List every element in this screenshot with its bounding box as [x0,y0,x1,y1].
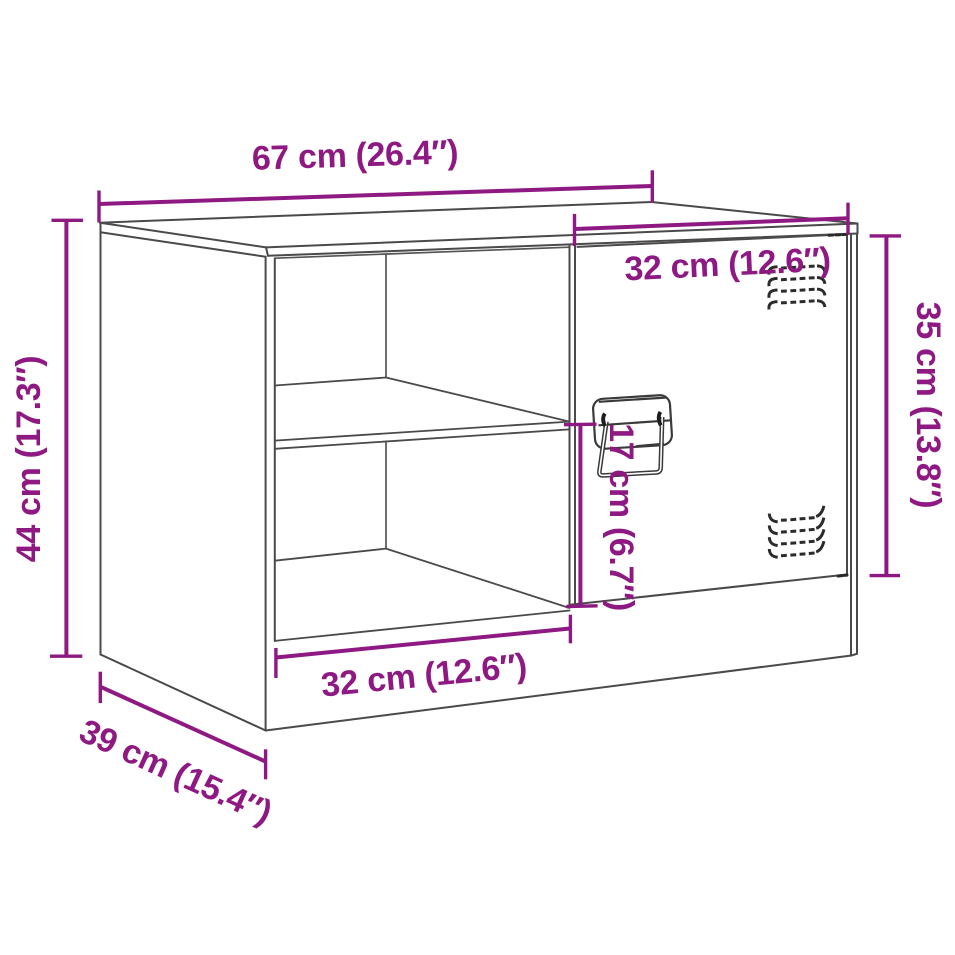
svg-text:44 cm (17.3″): 44 cm (17.3″) [10,356,48,562]
svg-text:67 cm (26.4″): 67 cm (26.4″) [251,133,458,177]
svg-text:17 cm (6.7″): 17 cm (6.7″) [602,423,640,611]
svg-text:35 cm (13.8″): 35 cm (13.8″) [909,302,947,508]
